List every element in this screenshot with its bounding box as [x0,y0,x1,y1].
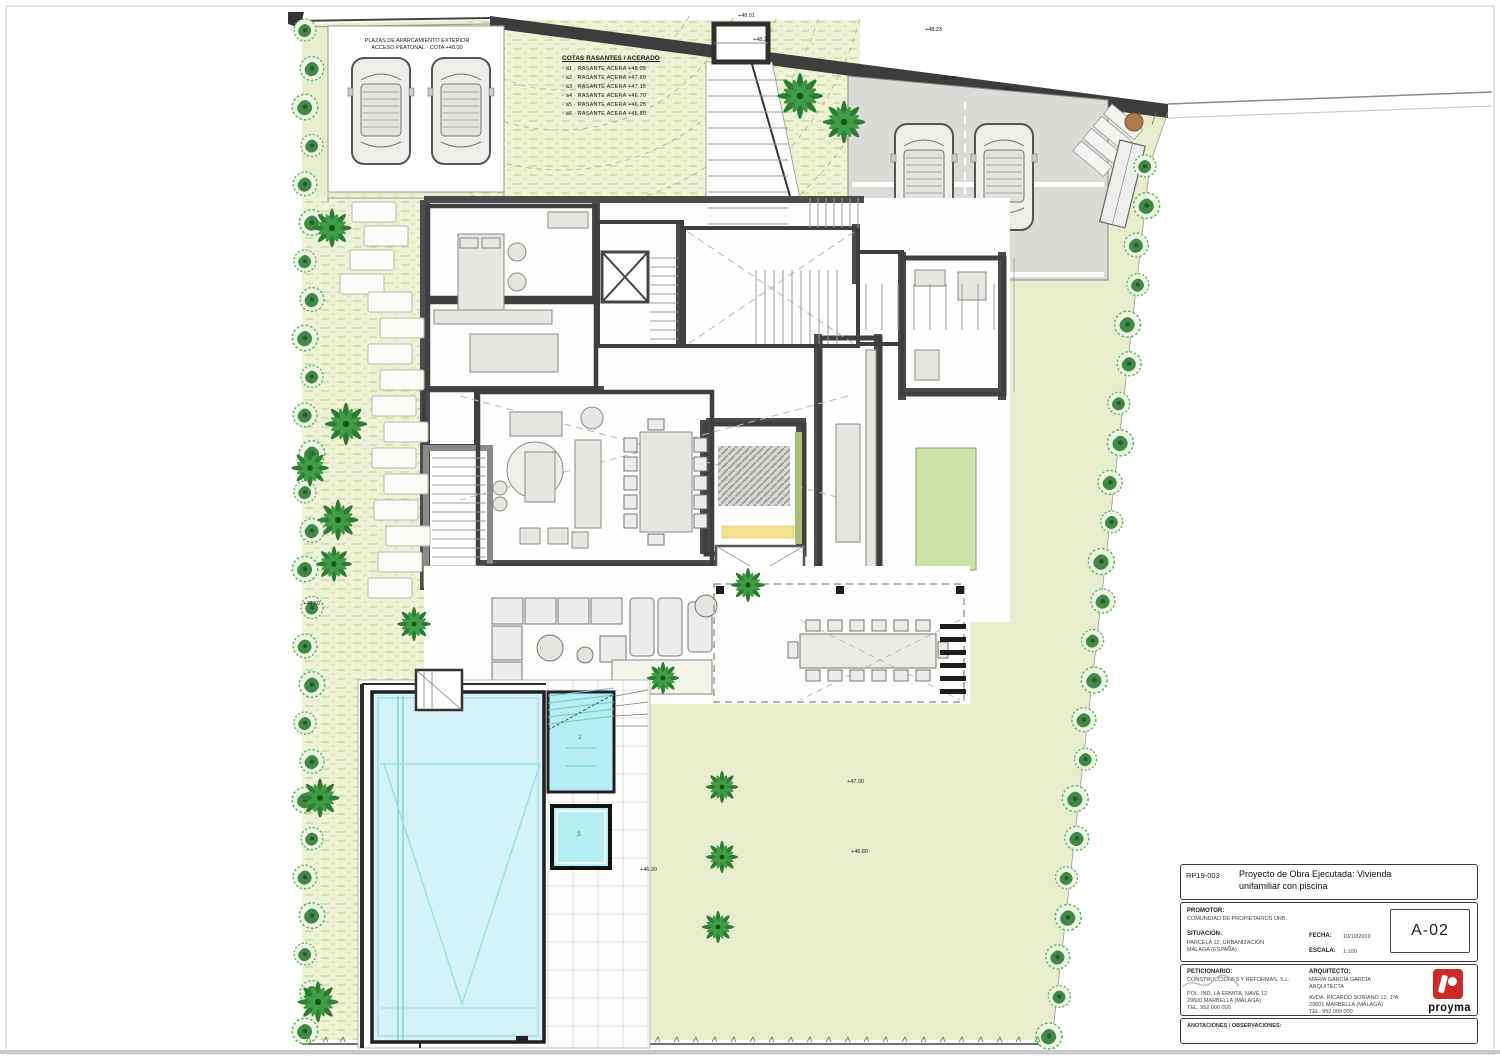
stepping-stone [368,292,412,312]
bush-icon [300,288,324,312]
bush-icon [1134,155,1156,177]
bush-icon [293,865,317,889]
palm-tree-icon [298,982,339,1023]
bush-icon [301,828,323,850]
tree-trunk-icon [1125,113,1143,131]
notes-row: ANOTACIONES / OBSERVACIONES: [1180,1018,1478,1044]
palm-tree-icon [316,546,352,582]
drawing-sheet: PLAZAS DE APARCAMIENTO EXTERIOR ACCESO P… [0,0,1500,1060]
elevation-mark: +46.80 [851,849,868,855]
bush-icon [300,750,324,774]
stepping-stone [380,370,424,390]
pool-area [358,670,650,1048]
stepping-stone [384,474,428,494]
bush-icon [294,19,316,41]
elevation-mark: +46.20 [640,867,657,873]
stepping-stone [374,500,418,520]
bush-icon [1091,589,1115,613]
stepping-stone [352,202,396,222]
stepping-stone [372,448,416,468]
bush-icon [299,903,325,929]
elevation-mark: +48.01 [738,13,755,19]
shallow-pool [548,692,614,792]
bush-icon [292,325,318,351]
palm-tree-icon [647,662,679,694]
bush-icon [300,519,324,543]
palm-tree-icon [702,911,734,943]
house-plan [420,196,1014,622]
company-wordmark: proyma [1428,1002,1471,1015]
bush-icon [1088,548,1114,574]
bush-icon [1036,1023,1062,1049]
bush-icon [299,672,325,698]
bush-icon [1048,985,1070,1007]
palm-tree-icon [706,771,738,803]
bush-icon [301,597,323,619]
spa-jacuzzi [552,806,610,868]
stepping-stone [364,226,408,246]
legend-item: - a4 · RASANTE ACERA +46.70 [562,92,782,101]
legend-title: COTAS RASANTES / ACERADO [562,55,782,62]
bush-icon [294,481,316,503]
bush-icon [301,135,323,157]
stepping-stone [368,578,412,598]
bush-icon [300,57,324,81]
legend-item: - a3 · RASANTE ACERA +47.15 [562,83,782,92]
palm-tree-icon [777,73,823,119]
car-icon [428,58,494,164]
bush-icon [1127,274,1149,296]
bush-icon [293,634,317,658]
bush-icon [1115,311,1141,337]
stepping-stone [368,344,412,364]
legend-item: - a1 · RASANTE ACERA +48.05 [562,65,782,74]
title-row: RP19-003 Proyecto de Obra Ejecutada: Viv… [1180,864,1478,900]
palm-tree-icon [397,607,431,641]
palm-tree-icon [291,449,328,486]
bush-icon [292,1018,318,1044]
parking-label: PLAZAS DE APARCAMIENTO EXTERIOR ACCESO P… [330,38,504,52]
project-code: RP19-003 [1181,865,1239,899]
bush-icon [1072,708,1096,732]
palm-tree-icon [318,500,359,541]
car-icon [348,58,414,164]
elevation-mark: +47.00 [847,779,864,785]
elevation-mark: +45.50 [303,601,320,607]
title-block: RP19-003 Proyecto de Obra Ejecutada: Viv… [1180,864,1478,1046]
bush-icon [1101,511,1123,533]
stepping-stone [378,552,422,572]
legend-item: - a5 · RASANTE ACERA +46.25 [562,101,782,110]
bush-icon [1081,667,1107,693]
elevation-mark: +48.12 [1002,86,1019,92]
bush-icon [1065,826,1089,850]
bush-icon [1134,193,1160,219]
signature-scribble [1181,973,1241,997]
observations-label: ANOTACIONES / OBSERVACIONES: [1181,1019,1477,1029]
elevator [602,252,648,302]
stepping-stone [384,422,428,442]
palm-tree-icon [312,208,351,247]
bush-icon [294,712,316,734]
project-title: Proyecto de Obra Ejecutada: Vivienda uni… [1239,865,1477,899]
sheet-number: A-02 [1390,909,1470,953]
bush-icon [1055,904,1081,930]
elevation-mark: +48.21 [753,37,770,43]
bush-icon [1075,748,1097,770]
bush-icon [294,943,316,965]
parties-row: PETICIONARIO: CONSTRUCCIONES Y REFORMAS,… [1180,964,1478,1016]
legend-item: - a6 · RASANTE ACERA +45.80 [562,110,782,119]
bush-icon [1055,867,1077,889]
bush-icon [1108,392,1130,414]
bush-icon [1117,352,1141,376]
planted-bed [916,448,976,570]
bush-icon [1062,786,1088,812]
stepping-stone [372,396,416,416]
bush-icon [1107,430,1133,456]
palm-tree-icon [300,778,339,817]
bush-icon [293,403,317,427]
bush-icon [1082,630,1104,652]
bush-icon [292,556,318,582]
company-logo-icon [1433,969,1463,999]
elevation-mark: +48.40 [940,76,957,82]
elevation-mark: +48.23 [925,27,942,33]
palm-tree-icon [706,841,738,873]
bush-icon [293,172,317,196]
bush-icon [1046,945,1070,969]
stepping-stone [350,250,394,270]
palm-tree-icon [325,403,368,446]
legend-item: - a2 · RASANTE ACERA +47.60 [562,74,782,83]
palm-tree-icon [731,568,765,602]
info-row: PROMOTOR: COMUNIDAD DE PROPIETARIOS URB.… [1180,902,1478,962]
bush-icon [301,366,323,388]
pool-depth-label: 2 [578,734,582,741]
stepping-stone [386,526,430,546]
spa-label: 3 [577,831,581,838]
bush-icon [1124,233,1148,257]
palm-tree-icon [823,101,866,144]
stepping-stone [340,274,384,294]
bush-icon [1098,470,1122,494]
levels-legend: COTAS RASANTES / ACERADO - a1 · RASANTE … [562,55,782,119]
stepping-stone [380,318,424,338]
bush-icon [294,250,316,272]
bush-icon [292,94,318,120]
